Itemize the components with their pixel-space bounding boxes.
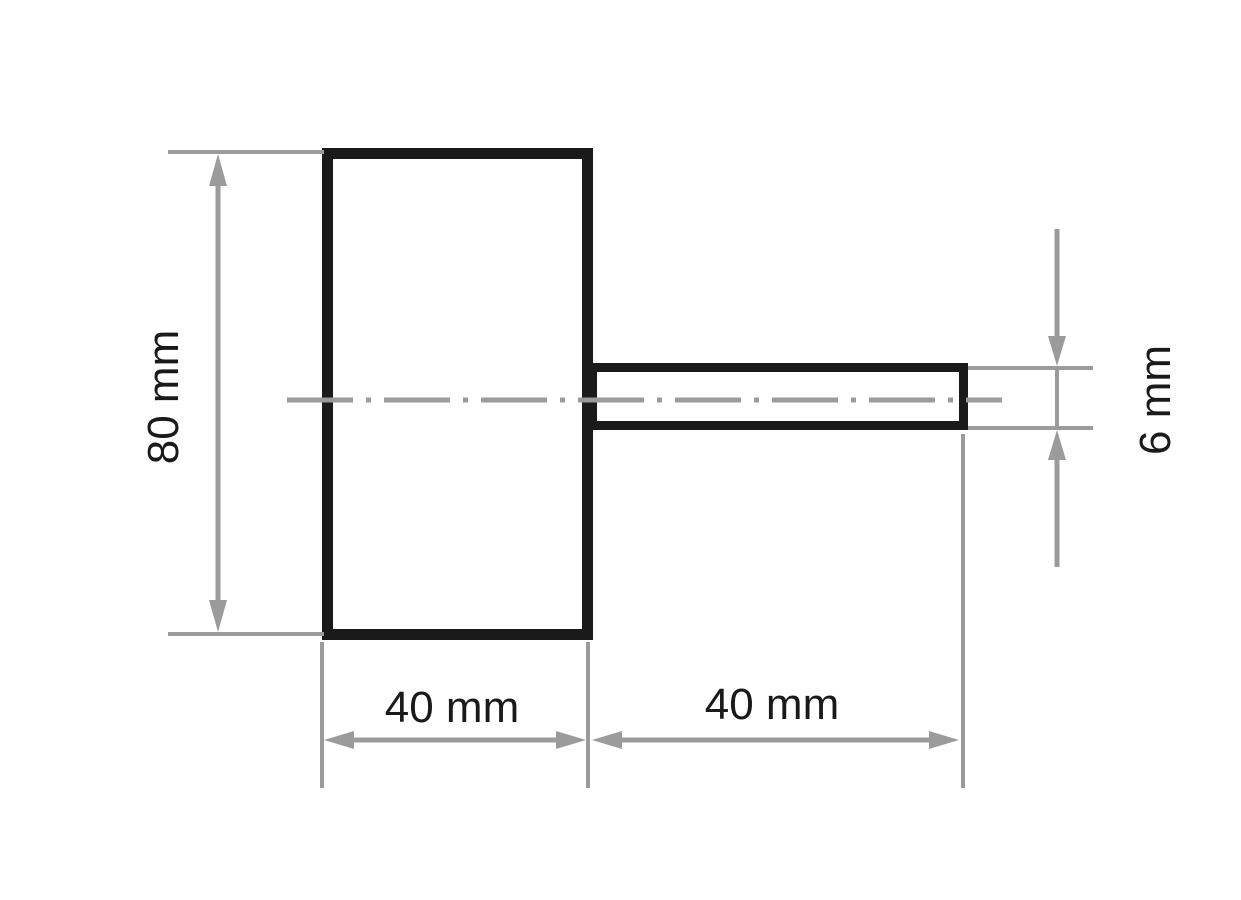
shank-length-arrowhead-left-icon [592,731,622,749]
body-outline [328,154,588,635]
shank-length-dimension: 40 mm [592,680,959,749]
shank-length-dimension-label: 40 mm [705,680,839,729]
technical-drawing: 80 mm 40 mm 40 mm 6 mm [0,0,1241,900]
body-width-arrowhead-left-icon [324,731,354,749]
diameter-arrowhead-down-icon [1048,336,1066,366]
body-width-dimension-label: 40 mm [385,683,519,732]
height-arrowhead-down-icon [209,600,227,632]
diameter-arrowhead-up-icon [1048,430,1066,460]
body-width-dimension: 40 mm [324,683,586,749]
shank-length-arrowhead-right-icon [929,731,959,749]
shank-diameter-dimension-label: 6 mm [1131,345,1180,455]
height-arrowhead-up-icon [209,154,227,186]
body-width-arrowhead-right-icon [556,731,586,749]
height-dimension: 80 mm [139,152,324,634]
height-dimension-label: 80 mm [139,330,188,464]
technical-drawing-canvas: 80 mm 40 mm 40 mm 6 mm [0,0,1241,900]
shank-outline [593,368,964,426]
